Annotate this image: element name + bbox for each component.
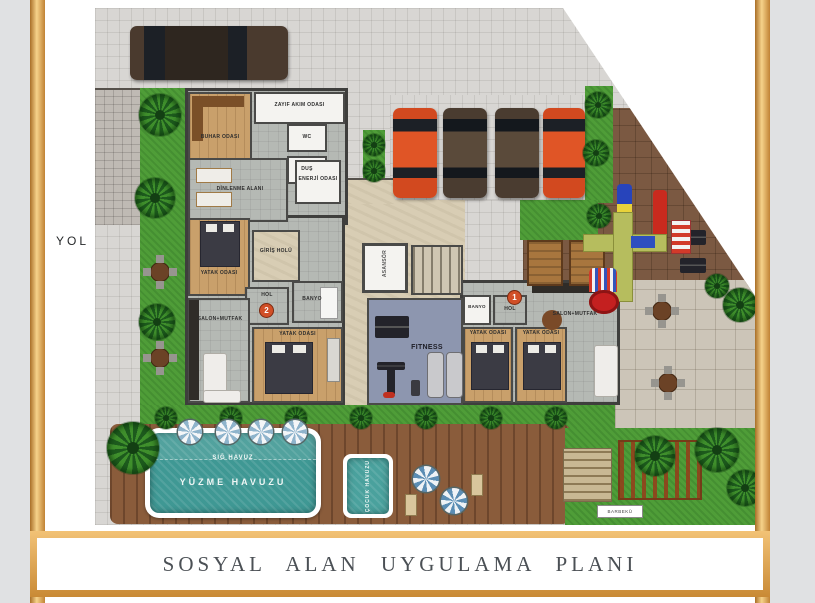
bathtub [320, 287, 338, 319]
palm-tree [545, 407, 567, 429]
elevator: ASANSÖR [362, 243, 408, 293]
palm-tree [723, 288, 757, 322]
unit1-banyo [463, 295, 491, 325]
spa-lounger [196, 192, 232, 207]
palm-tree [139, 304, 175, 340]
palm-tree [107, 422, 159, 474]
car-driveway [130, 26, 288, 80]
stone-edge [95, 88, 140, 225]
car-orange [543, 108, 585, 198]
palm-tree [635, 436, 675, 476]
gym-machine [427, 352, 444, 398]
bed [523, 342, 561, 390]
label-wc: WC [287, 134, 327, 140]
pool-parasol [216, 420, 240, 444]
sun-lounger [471, 474, 483, 496]
palm-tree [363, 134, 385, 156]
gym-cylinder [411, 380, 420, 396]
pool-water: SIĞ HAVUZ YÜZME HAVUZU [150, 433, 316, 513]
play-tube-red [653, 190, 667, 238]
kids-pool: ÇOCUK HAVUZU [343, 454, 393, 518]
spa-lounger [196, 168, 232, 183]
kids-pool-water: ÇOCUK HAVUZU [347, 458, 389, 514]
bed [471, 342, 509, 390]
barbeku-box: BARBEKÜ [597, 505, 643, 518]
label-buhar-odasi: BUHAR ODASI [188, 134, 252, 140]
label-unit1-hol: HOL [493, 306, 527, 312]
entrance-walk [345, 178, 395, 204]
palm-tree [415, 407, 437, 429]
playground-equipment [583, 176, 693, 316]
unit2-giris-holu [252, 230, 300, 282]
garden-table [649, 364, 687, 402]
car-brown [443, 108, 487, 198]
deck-parasol [441, 488, 467, 514]
deck-parasol [413, 466, 439, 492]
label-enerji: ENERJİ ODASI [295, 176, 341, 182]
sofa [203, 390, 241, 403]
stairs [411, 245, 463, 295]
palm-tree [155, 407, 177, 429]
palm-tree [587, 204, 611, 228]
kitchen-counter [189, 300, 199, 400]
title-bar: SOSYAL ALAN UYGULAMA PLANI [37, 538, 763, 590]
picnic-table [527, 240, 563, 286]
title-frame: SOSYAL ALAN UYGULAMA PLANI [30, 531, 770, 597]
label-unit2-banyo: BANYO [292, 296, 332, 302]
label-unit2-salon: SALON+MUTFAK [191, 316, 249, 322]
label-asansor: ASANSÖR [382, 250, 388, 277]
wardrobe [327, 338, 340, 382]
palm-tree [135, 178, 175, 218]
label-barbeku: BARBEKÜ [607, 509, 632, 514]
play-tent [589, 268, 617, 292]
palm-tree [480, 407, 502, 429]
palm-tree [350, 407, 372, 429]
bench-press [377, 362, 405, 370]
label-unit2-yatak2: YATAK ODASI [252, 331, 343, 337]
weight-plate [383, 392, 395, 398]
label-sig-havuz: SIĞ HAVUZ [188, 455, 278, 463]
label-dinlenme: DİNLENME ALANI [200, 186, 280, 192]
sofa [594, 345, 618, 397]
car-brown [495, 108, 539, 198]
pool-parasol [178, 420, 202, 444]
road-label: YOL [56, 234, 100, 248]
pool-parasol [249, 420, 273, 444]
palm-tree [139, 94, 181, 136]
bed [200, 221, 240, 267]
label-unit2-hol: HOL [245, 292, 289, 298]
plan-page: YOL BUHAR ODASI ZAYIF AKIM ODASI WC DUŞ [0, 0, 815, 603]
label-unit1-yatak2: YATAK ODASI [515, 330, 567, 336]
label-unit1-banyo: BANYO [461, 304, 493, 310]
garden-table [141, 339, 179, 377]
sun-lounger [405, 494, 417, 516]
palm-tree [695, 428, 739, 472]
wood-steps [563, 448, 612, 502]
treadmill [375, 316, 409, 338]
unit1-marker: 1 [507, 290, 522, 305]
frame-right-bar [755, 0, 770, 603]
label-unit1-salon: SALON+MUTFAK [535, 311, 615, 317]
play-bridge [631, 236, 655, 248]
car-orange [393, 108, 437, 198]
label-unit2-giris: GİRİŞ HOLÜ [252, 248, 300, 254]
label-yuzme-havuzu: YÜZME HAVUZU [153, 477, 313, 488]
bench-press [387, 370, 395, 394]
label-fitness: FITNESS [395, 344, 459, 353]
label-unit1-yatak1: YATAK ODASI [463, 330, 513, 336]
gym-machine [446, 352, 463, 398]
bed [265, 342, 313, 394]
unit2-marker: 2 [259, 303, 274, 318]
sauna-bench [192, 96, 244, 107]
palm-tree [583, 140, 609, 166]
label-cocuk-havuzu: ÇOCUK HAVUZU [365, 460, 371, 512]
label-dus: DUŞ [287, 166, 327, 172]
play-ladder [671, 220, 691, 254]
pool-parasol [283, 420, 307, 444]
palm-tree [585, 92, 611, 118]
sofa [203, 353, 227, 393]
garden-table [141, 253, 179, 291]
label-zayif-akim: ZAYIF AKIM ODASI [254, 102, 345, 108]
room-buhar-odasi [188, 92, 252, 166]
frame-left-bar [30, 0, 45, 603]
label-unit2-yatak1: YATAK ODASI [188, 270, 250, 276]
palm-tree [363, 160, 385, 182]
plan-title: SOSYAL ALAN UYGULAMA PLANI [163, 552, 638, 577]
